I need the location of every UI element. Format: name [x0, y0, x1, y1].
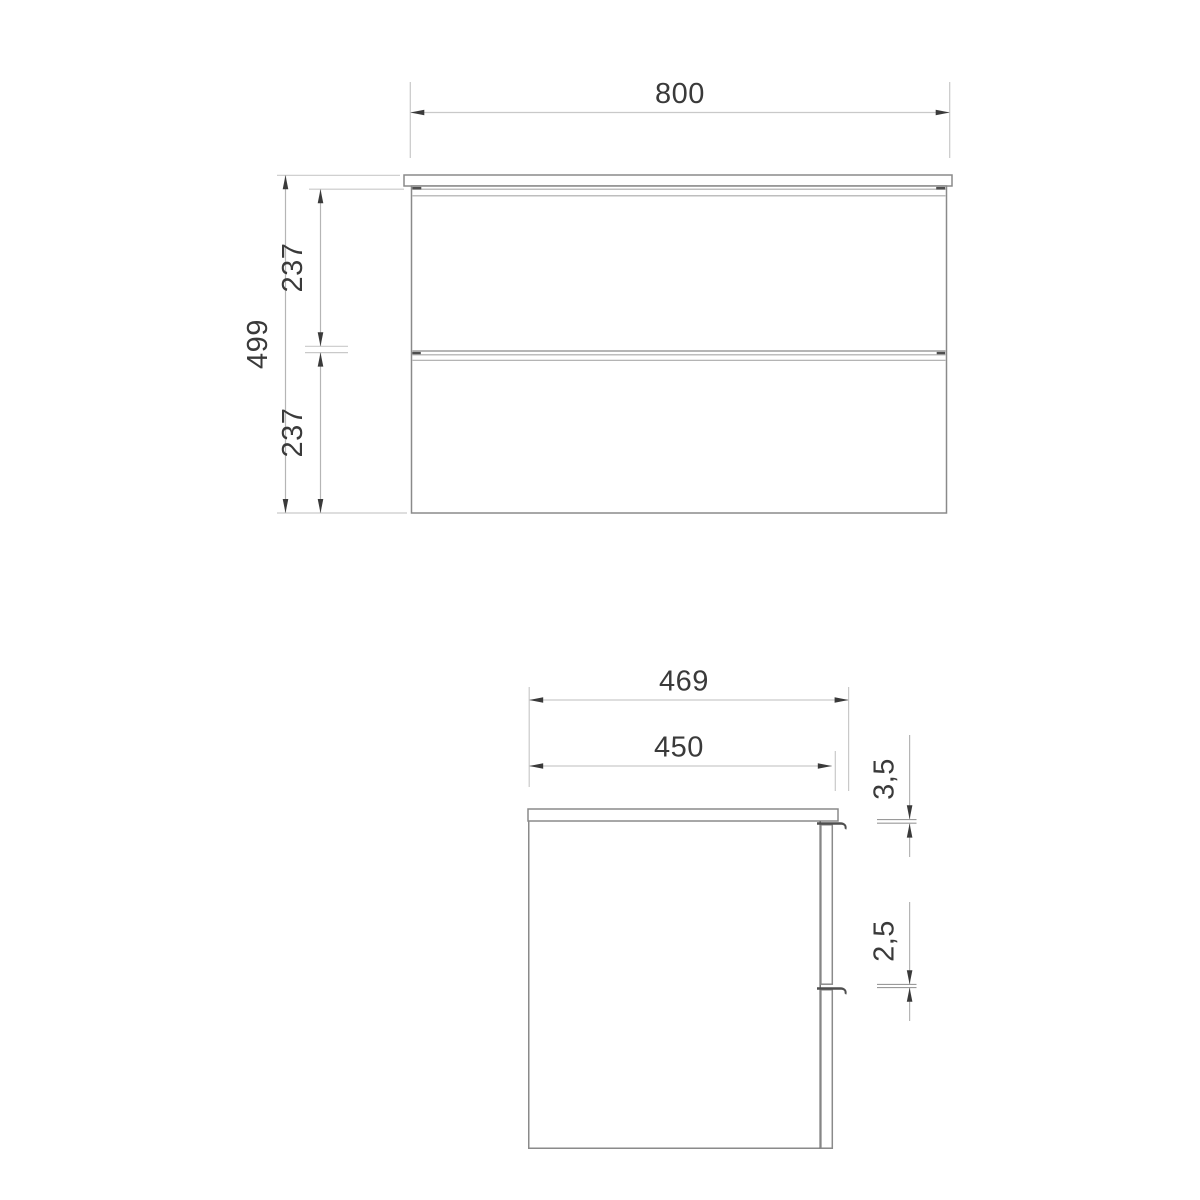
- front-top-rail-left-endcap: [412, 187, 421, 190]
- dim-label-side-outer-depth: 469: [659, 666, 709, 698]
- front-view: [404, 175, 952, 513]
- dim-arrow-right-icon: [818, 763, 832, 769]
- front-mid-rail-left-endcap: [412, 352, 421, 355]
- technical-drawing-canvas: 800 499 237 237: [0, 0, 1200, 1200]
- front-mid-rail-right-endcap: [937, 352, 946, 355]
- dim-arrow-right-icon: [936, 110, 950, 116]
- side-drawer1-front: [821, 825, 832, 984]
- dim-arrow-left-icon: [410, 110, 424, 116]
- dim-arrow-up-icon: [907, 988, 913, 1002]
- dim-side-top-gap: 3,5: [869, 735, 917, 857]
- dim-label-side-top-gap: 3,5: [869, 758, 901, 800]
- dim-arrow-down-icon: [318, 499, 324, 513]
- dim-label-side-drawer-gap: 2,5: [869, 920, 901, 962]
- dim-arrow-left-icon: [529, 763, 543, 769]
- dim-label-side-body-depth: 450: [654, 732, 704, 764]
- dim-arrow-down-icon: [907, 970, 913, 984]
- dim-label-front-width: 800: [655, 78, 705, 110]
- dim-arrow-up-icon: [318, 189, 324, 203]
- dim-front-width: 800: [410, 78, 949, 158]
- dim-side-body-depth: 450: [529, 732, 835, 792]
- front-countertop: [404, 175, 952, 186]
- dim-arrow-left-icon: [529, 697, 543, 703]
- dim-front-height: 499: [242, 175, 407, 513]
- dim-label-drawer2-height: 237: [277, 408, 309, 458]
- dim-arrow-up-icon: [907, 824, 913, 838]
- dim-side-outer-depth: 469: [529, 666, 848, 792]
- front-cabinet-body: [412, 186, 947, 513]
- dim-label-front-height: 499: [242, 319, 274, 369]
- dim-arrow-up-icon: [318, 353, 324, 367]
- dim-arrow-down-icon: [283, 499, 289, 513]
- side-cabinet-body-outline: [529, 821, 833, 1148]
- dim-label-drawer1-height: 237: [277, 243, 309, 293]
- dim-arrow-down-icon: [318, 332, 324, 346]
- front-top-rail-right-endcap: [936, 187, 945, 190]
- side-countertop: [528, 809, 838, 821]
- dim-side-drawer-gap: 2,5: [869, 902, 917, 1021]
- dim-drawer1-height: 237: [277, 189, 404, 346]
- dim-arrow-down-icon: [907, 805, 913, 819]
- dim-arrow-right-icon: [835, 697, 849, 703]
- side-drawer2-front: [821, 990, 832, 1148]
- side-view: [528, 809, 847, 1148]
- dim-arrow-up-icon: [283, 175, 289, 189]
- drawing-page: 800 499 237 237: [0, 0, 1200, 1200]
- dim-drawer2-height: 237: [277, 353, 348, 513]
